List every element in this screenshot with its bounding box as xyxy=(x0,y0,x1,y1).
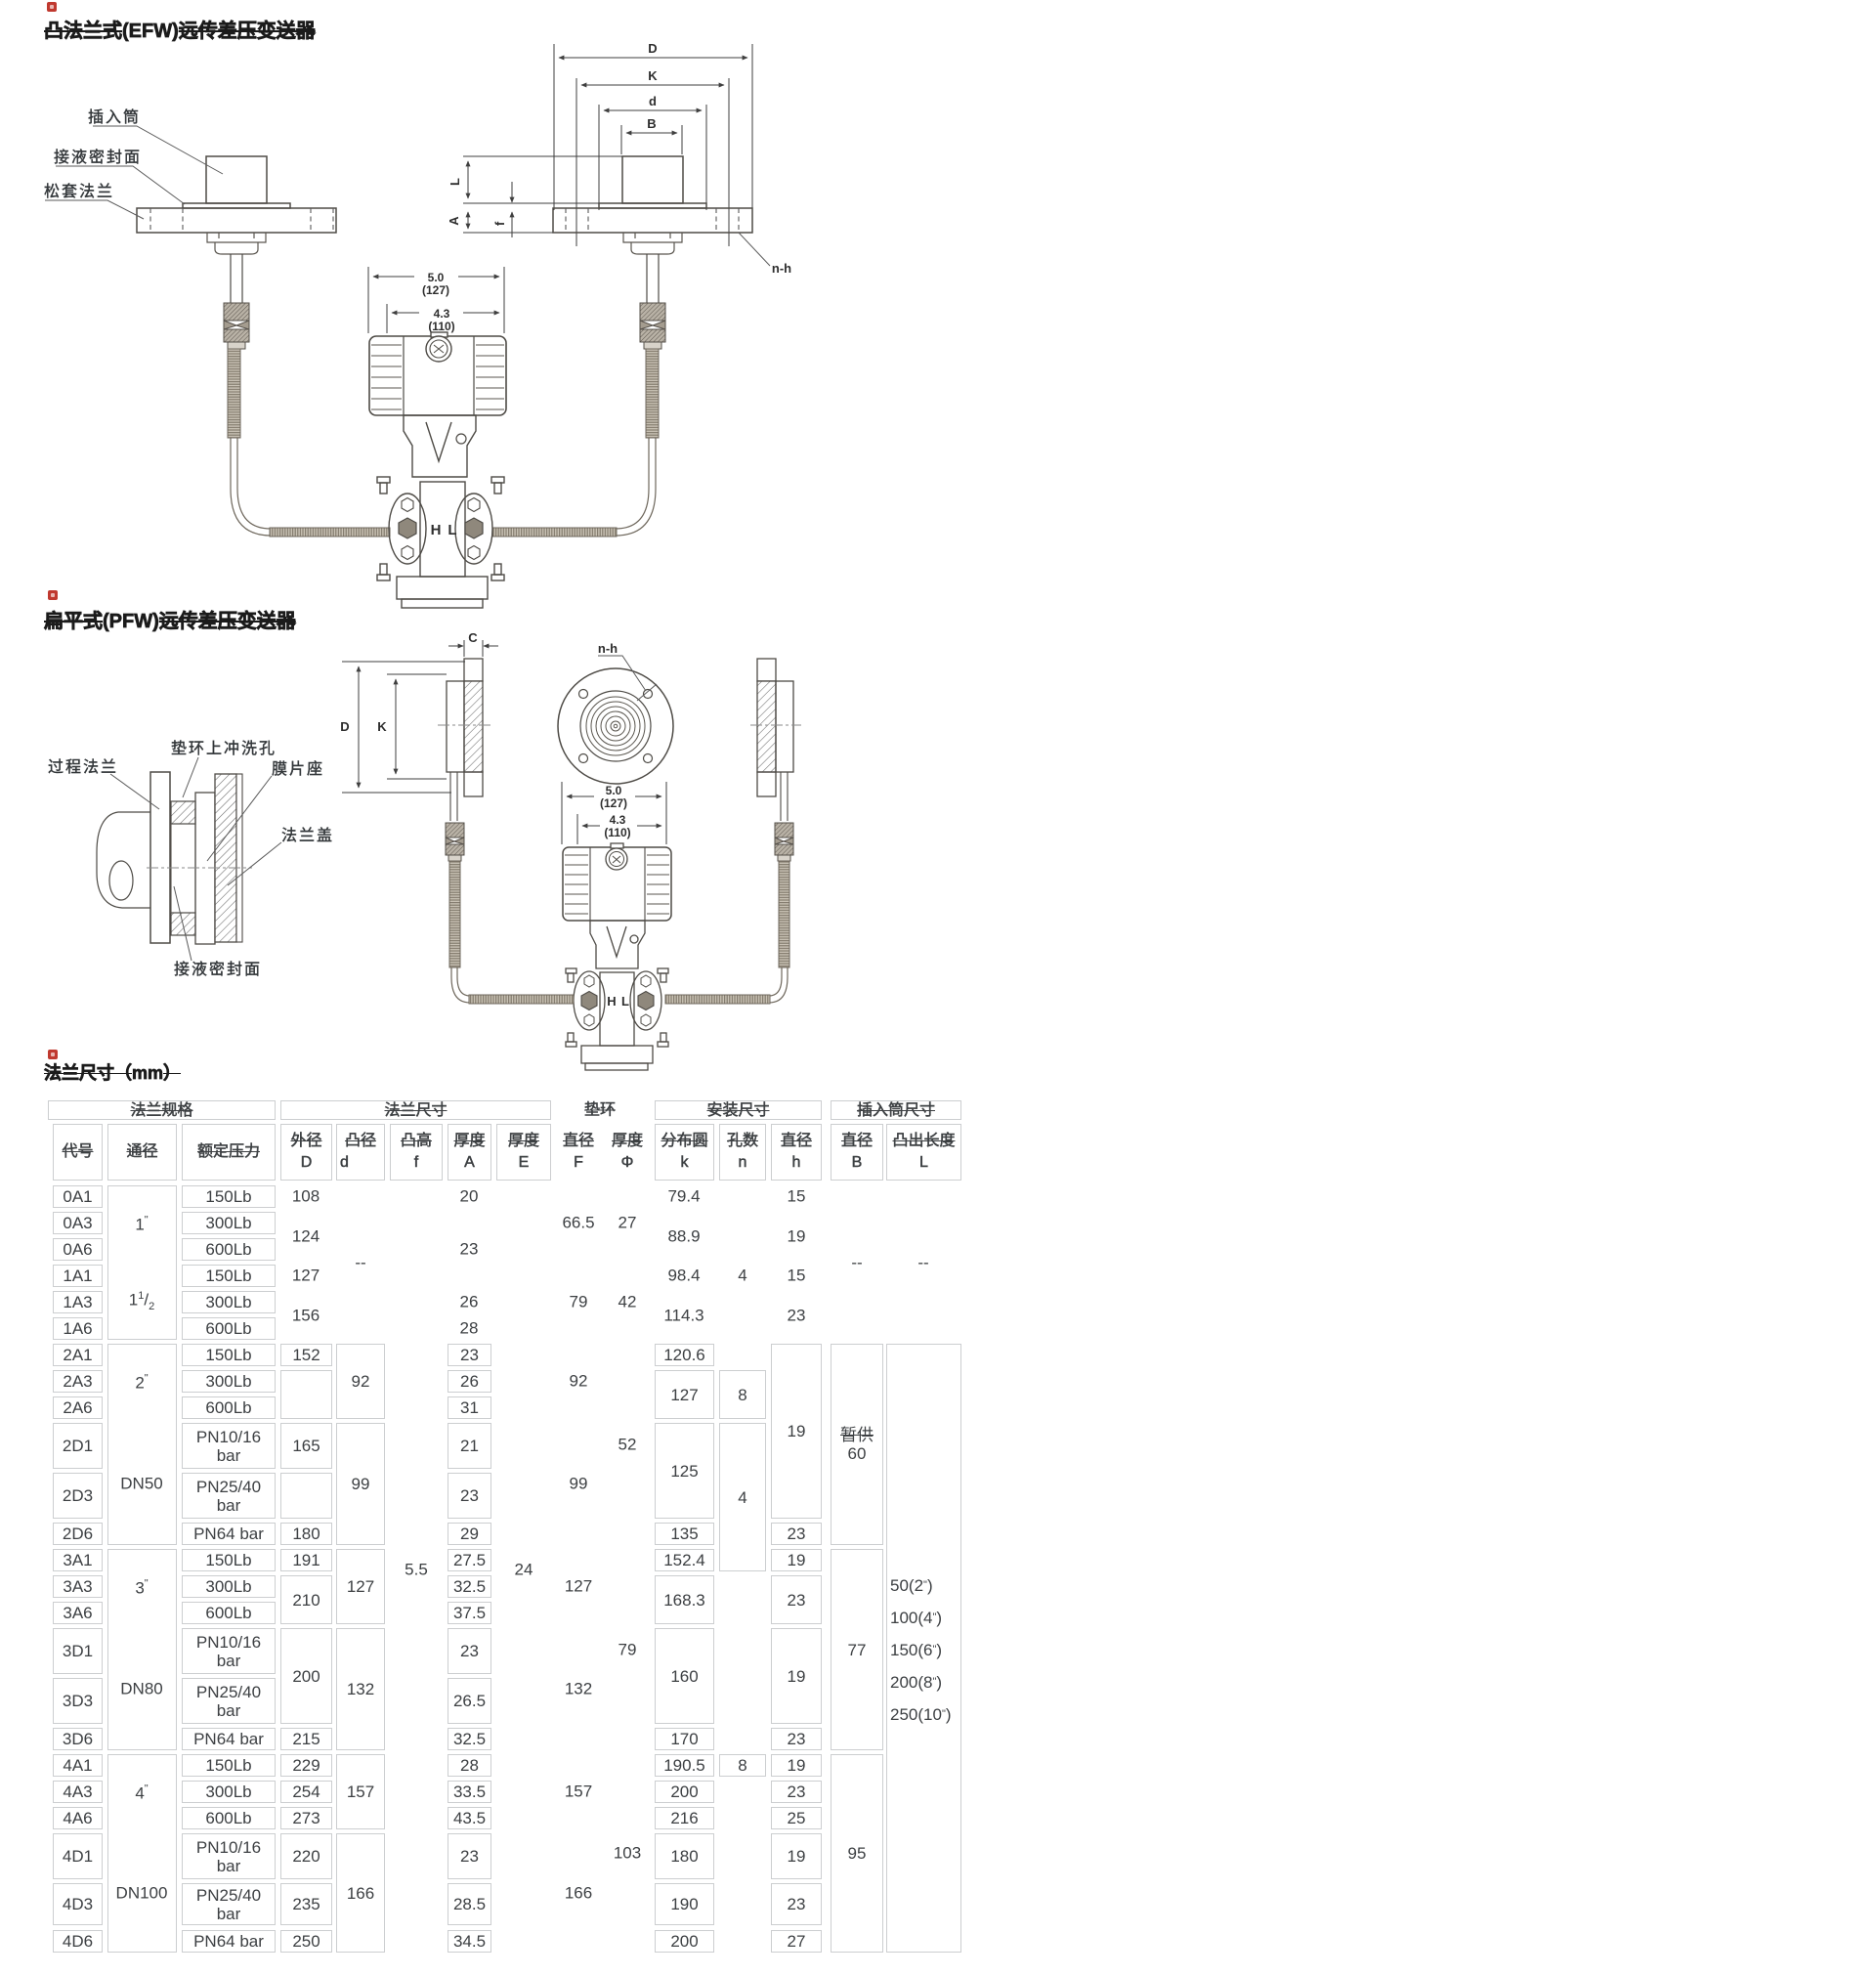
svg-text:n-h: n-h xyxy=(598,641,618,656)
svg-text:(127): (127) xyxy=(422,283,449,297)
svg-text:d: d xyxy=(649,94,657,108)
svg-text:(110): (110) xyxy=(604,826,630,839)
svg-text:D: D xyxy=(340,719,349,734)
svg-text:膜片座: 膜片座 xyxy=(272,760,324,778)
svg-text:法兰盖: 法兰盖 xyxy=(281,827,334,844)
svg-text:5.0: 5.0 xyxy=(428,271,445,284)
svg-text:n-h: n-h xyxy=(772,261,791,276)
svg-text:K: K xyxy=(648,68,658,83)
svg-text:4.3: 4.3 xyxy=(610,813,626,827)
svg-text:松套法兰: 松套法兰 xyxy=(44,183,114,200)
svg-text:插入筒: 插入筒 xyxy=(88,108,141,126)
svg-text:5.0: 5.0 xyxy=(606,784,622,797)
svg-text:接液密封面: 接液密封面 xyxy=(54,149,142,166)
svg-text:(110): (110) xyxy=(428,320,454,333)
svg-text:H: H xyxy=(431,522,442,538)
svg-text:K: K xyxy=(377,719,387,734)
svg-text:C: C xyxy=(468,630,478,645)
svg-text:H: H xyxy=(607,994,616,1009)
svg-text:(127): (127) xyxy=(600,796,627,810)
svg-text:L: L xyxy=(448,178,462,186)
svg-text:接液密封面: 接液密封面 xyxy=(174,961,262,978)
svg-text:过程法兰: 过程法兰 xyxy=(48,758,118,776)
svg-text:f: f xyxy=(492,221,507,226)
svg-text:A: A xyxy=(447,216,461,226)
svg-text:B: B xyxy=(647,116,656,131)
svg-text:垫环上冲洗孔: 垫环上冲洗孔 xyxy=(171,740,277,757)
svg-text:L: L xyxy=(621,994,629,1009)
svg-text:4.3: 4.3 xyxy=(434,307,450,321)
svg-text:L: L xyxy=(448,522,456,538)
svg-text:D: D xyxy=(648,41,657,56)
